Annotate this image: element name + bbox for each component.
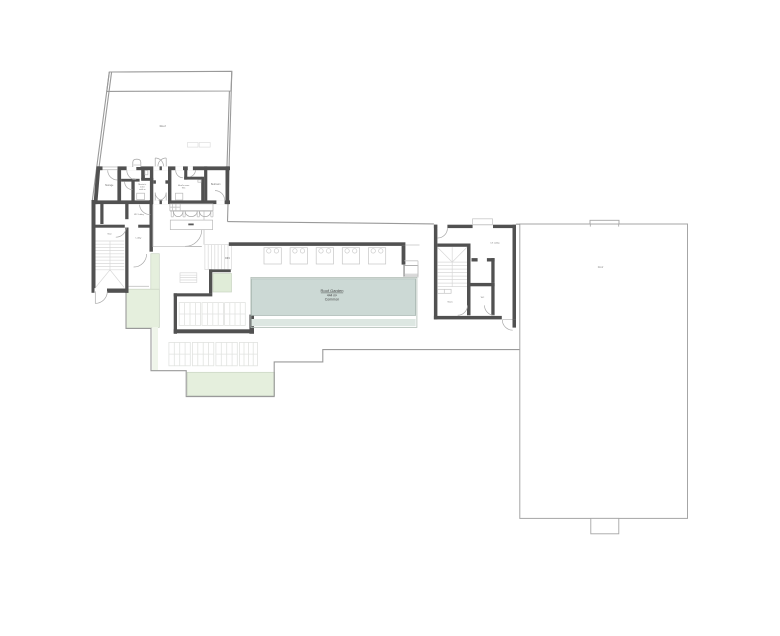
svg-text:Lobby: Lobby xyxy=(136,238,143,240)
svg-text:Lift Lobby: Lift Lobby xyxy=(490,241,500,244)
svg-text:DN: DN xyxy=(225,256,229,260)
svg-text:toilet: toilet xyxy=(140,185,145,188)
svg-text:Bedroom: Bedroom xyxy=(211,183,221,186)
svg-text:Maid's room: Maid's room xyxy=(178,184,190,187)
svg-text:WC: WC xyxy=(481,297,485,299)
svg-text:Common: Common xyxy=(325,298,340,302)
svg-text:Stair: Stair xyxy=(107,232,112,235)
svg-text:Master's: Master's xyxy=(138,183,146,186)
svg-text:Stairs: Stairs xyxy=(447,300,452,303)
svg-text:Roof Garden: Roof Garden xyxy=(321,288,344,293)
svg-text:Storage: Storage xyxy=(105,184,114,187)
svg-text:WC: WC xyxy=(182,187,186,189)
svg-text:walk-in: walk-in xyxy=(139,189,146,191)
svg-text:Roof: Roof xyxy=(160,124,166,128)
svg-text:WC Lobby: WC Lobby xyxy=(134,214,145,216)
svg-text:Roof: Roof xyxy=(598,265,604,269)
